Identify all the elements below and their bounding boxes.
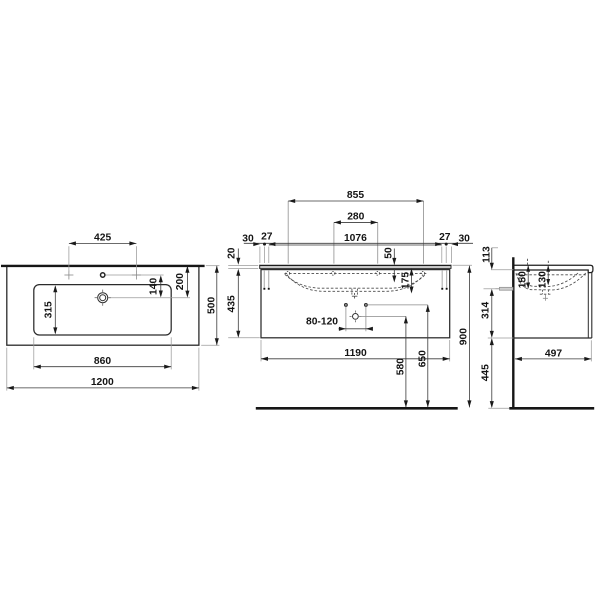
svg-text:1076: 1076 — [344, 233, 367, 244]
svg-text:314: 314 — [480, 302, 491, 319]
svg-text:175: 175 — [400, 272, 411, 289]
svg-text:580: 580 — [396, 358, 407, 375]
svg-text:1190: 1190 — [344, 348, 367, 359]
svg-text:650: 650 — [418, 350, 429, 367]
svg-text:315: 315 — [44, 301, 55, 318]
svg-text:280: 280 — [347, 212, 364, 223]
svg-text:27: 27 — [439, 232, 451, 243]
svg-text:500: 500 — [207, 297, 218, 314]
svg-text:425: 425 — [94, 233, 111, 244]
svg-text:50: 50 — [383, 247, 394, 259]
svg-text:445: 445 — [480, 364, 491, 381]
svg-text:27: 27 — [261, 232, 273, 243]
svg-text:855: 855 — [347, 190, 364, 201]
svg-text:30: 30 — [242, 233, 254, 244]
svg-text:113: 113 — [481, 246, 492, 263]
svg-text:20: 20 — [227, 247, 238, 259]
svg-text:900: 900 — [459, 328, 470, 345]
svg-text:860: 860 — [94, 356, 111, 367]
svg-text:30: 30 — [458, 234, 470, 245]
svg-text:435: 435 — [227, 295, 238, 312]
svg-text:140: 140 — [149, 278, 160, 295]
svg-text:80-120: 80-120 — [306, 317, 338, 328]
svg-text:1200: 1200 — [91, 377, 114, 388]
svg-text:497: 497 — [545, 349, 562, 360]
svg-text:130: 130 — [538, 271, 549, 288]
svg-text:150: 150 — [517, 271, 528, 288]
svg-text:200: 200 — [175, 273, 186, 290]
